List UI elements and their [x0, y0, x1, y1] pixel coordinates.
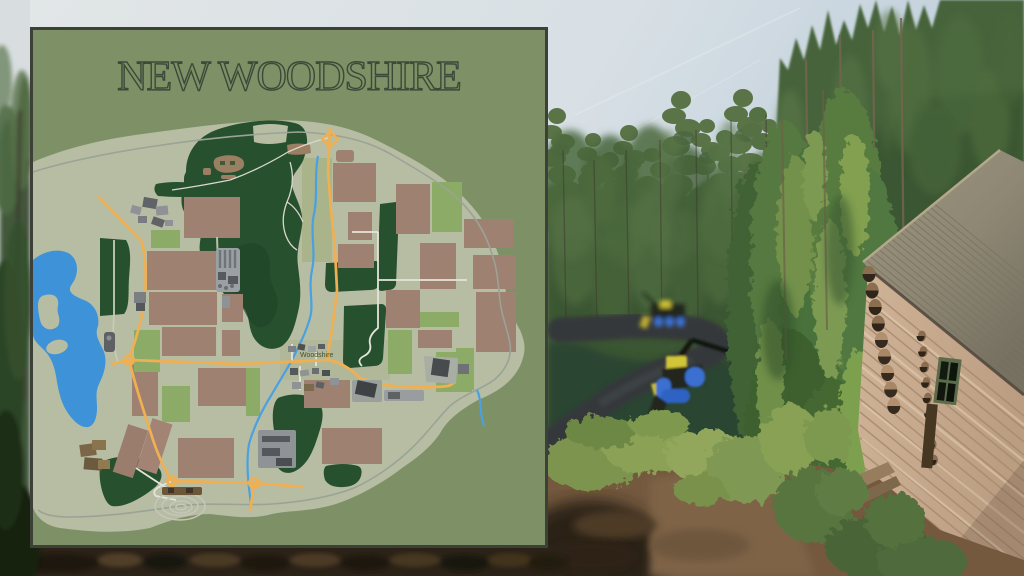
svg-text:Woodshire: Woodshire — [300, 352, 333, 359]
svg-text:NEW WOODSHIRE: NEW WOODSHIRE — [117, 54, 461, 100]
